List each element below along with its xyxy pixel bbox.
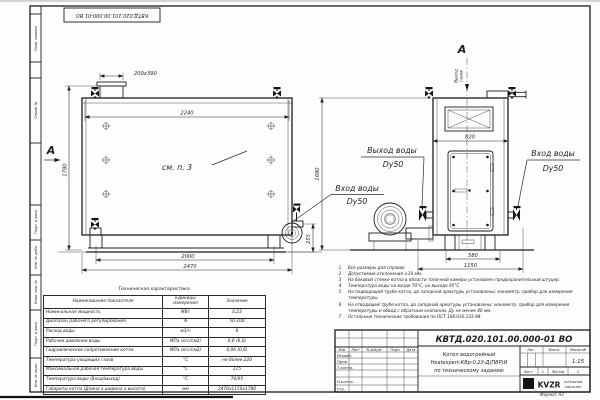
notes-list: 1Все размеры для справок 2Допустимые отк…: [336, 265, 588, 320]
dim-chimney: 200х390: [134, 71, 158, 77]
col-value-header: Значение: [209, 296, 266, 309]
logo-text: KVZR: [538, 381, 561, 390]
water-outlet-valve: [419, 206, 433, 221]
list-item: 6На отводящей трубе котла, до запорной а…: [336, 302, 588, 314]
chimney: [100, 86, 123, 98]
dim-width: 2240: [180, 111, 194, 117]
drawing-sheet: 200х390 2240 1780 А см. п. 3: [0, 0, 600, 400]
side-inlet-size: Dy50: [347, 197, 368, 206]
cell-value: 2470х1150х1780: [209, 385, 266, 395]
cell-units: МПа (кгс/см2): [163, 347, 209, 357]
row-utv: Утв.: [337, 387, 345, 392]
title-block: КВТД.020.101.00.000-01 ВО Котел водогрей…: [335, 330, 590, 392]
logo-mark: [523, 378, 534, 389]
lit-header: Лит.: [526, 348, 535, 352]
cell-units: %: [163, 318, 209, 328]
stamp-doc-number: КВТД.020.101.00.000-01 ВО: [64, 8, 160, 22]
table-row: Температура воды (Вход/выход)°С70/95: [44, 376, 266, 386]
table-row: Номинальная мощностьМВт0,23: [44, 309, 266, 319]
margin-label-sprav-no: Справ. №: [31, 75, 41, 145]
masshtab-header: Масштаб: [570, 348, 586, 352]
dim-height: 1780: [63, 163, 69, 177]
cell-value: 0,06 (0,6): [209, 347, 266, 357]
dim-base-height: 255: [306, 233, 312, 244]
sheets-value: 2: [577, 370, 579, 374]
water-inlet-valve: [508, 206, 521, 221]
title-name-3: по техническому заданию: [434, 368, 504, 374]
cell-units: °С: [163, 356, 209, 366]
cell-value: 50-100: [209, 318, 266, 328]
row-tkontr: Т.контр.: [337, 365, 353, 370]
view-label: А: [457, 43, 467, 56]
inlet-label: Вход воды: [531, 149, 575, 158]
cell-name: Рабочее давление воды: [44, 337, 163, 347]
col-name-header: Наименование показателя: [44, 296, 163, 309]
tech-table: Наименование показателя Единицыизмерения…: [43, 295, 266, 395]
table-row: Температура уходящих газов°Сне более 220: [44, 356, 266, 366]
list-item: 5На подводящей трубе котла, до запорной …: [336, 289, 588, 301]
title-name-1: Котел водогрейный: [443, 352, 496, 358]
vent-valve-left: [425, 87, 433, 99]
sheet-value: 1: [542, 370, 544, 374]
table-row: Расход водым3/ч8: [44, 328, 266, 338]
cell-value: 8: [209, 328, 266, 338]
front-view: А Выход газов 820: [315, 43, 580, 273]
tech-table-title: Техническая характеристика: [43, 287, 265, 292]
cell-name: Температура воды (Вход/выход): [44, 376, 163, 386]
table-row: Максимальная рабочая температура воды°С1…: [44, 366, 266, 376]
margin-label-inv-podl: Инв. № подл.: [31, 340, 41, 400]
cell-name: Диапазон рабочего регулирования: [44, 318, 163, 328]
header-data: Дата: [406, 348, 416, 352]
fan: [369, 203, 433, 250]
cell-units: °С: [163, 376, 209, 386]
table-row: Рабочее давление водыМПа (кгс/см2)0,6 (6…: [44, 337, 266, 347]
cell-units: МПа (кгс/см2): [163, 337, 209, 347]
logo-caption-1: КОТЕЛЬНЫЙ: [564, 379, 582, 384]
outlet-size: Dy50: [383, 160, 404, 169]
dim-total: 2470: [183, 264, 197, 270]
gas-outlet-label-2: газов: [459, 70, 464, 82]
col-units-header: Единицыизмерения: [163, 296, 209, 309]
cell-value: не более 220: [209, 356, 266, 366]
cell-units: °С: [163, 366, 209, 376]
vent-valve-top-left: [91, 87, 99, 99]
cell-name: Расход воды: [44, 328, 163, 338]
logo-caption-2: ЗАВОД РЭП: [565, 385, 582, 389]
cell-units: мм: [163, 385, 209, 395]
cell-name: Максимальная рабочая температура воды: [44, 366, 163, 376]
row-nkontr: Н.контр.: [337, 379, 354, 384]
inlet-size: Dy50: [543, 164, 564, 173]
title-doc-number: КВТД.020.101.00.000-01 ВО: [436, 335, 573, 345]
gas-flow-arrow: [465, 84, 469, 91]
table-row: Габариты котла (Длина х ширина х высота)…: [44, 385, 266, 395]
header-podp: Подп.: [390, 348, 400, 352]
cell-value: 0,23: [209, 309, 266, 319]
sheet-label: Лист: [523, 370, 534, 374]
tech-table-header: Наименование показателя Единицыизмерения…: [44, 296, 266, 309]
cell-units: м3/ч: [163, 328, 209, 338]
section-label: А: [46, 144, 56, 157]
vent-valve-top-right: [273, 87, 281, 99]
side-inlet-label: Вход воды: [335, 184, 379, 193]
table-row: Гидравлическое сопротивление котлаМПа (к…: [44, 347, 266, 357]
cell-name: Температура уходящих газов: [44, 356, 163, 366]
cell-name: Номинальная мощность: [44, 309, 163, 319]
row-prov: Пров.: [337, 359, 348, 364]
cell-value: 115: [209, 366, 266, 376]
cell-name: Гидравлическое сопротивление котла: [44, 347, 163, 357]
dim-base: 2000: [181, 254, 195, 260]
table-row: Диапазон рабочего регулирования%50-100: [44, 318, 266, 328]
header-list: Лист: [350, 348, 361, 352]
header-izm: Изм: [339, 348, 346, 352]
scale-value: 1:15: [572, 359, 585, 365]
boiler-door: [448, 151, 494, 231]
callout-see-p3: см. п. 3: [162, 163, 192, 172]
cell-name: Габариты котла (Длина х ширина х высота): [44, 385, 163, 395]
cell-value: 0,6 (6,0): [209, 337, 266, 347]
massa-header: Масса: [549, 348, 560, 352]
cell-units: МВт: [163, 309, 209, 319]
datum-marks: [102, 122, 276, 199]
list-item: 7Остальные технические требования по ОСТ…: [336, 314, 588, 320]
outlet-label: Выход воды: [367, 146, 417, 155]
dim-front-height: 1690: [315, 167, 321, 181]
header-ndoc: N докум.: [367, 348, 383, 352]
sheets-label: Листов: [551, 370, 565, 374]
side-view: 200х390 2240 1780 А см. п. 3: [44, 71, 384, 274]
cell-value: 70/95: [209, 376, 266, 386]
format-label: Формат А3: [540, 392, 564, 397]
margin-label-perv-primen: Перв. примен.: [31, 3, 41, 73]
gas-opening: [445, 107, 493, 131]
row-razrab: Разраб.: [337, 353, 352, 358]
dim-front-base: 580: [468, 253, 479, 259]
dim-front-width: 820: [465, 135, 476, 141]
title-name-2: Heatexpert-КВр-0,23-Д(ПВР)И: [431, 360, 508, 366]
